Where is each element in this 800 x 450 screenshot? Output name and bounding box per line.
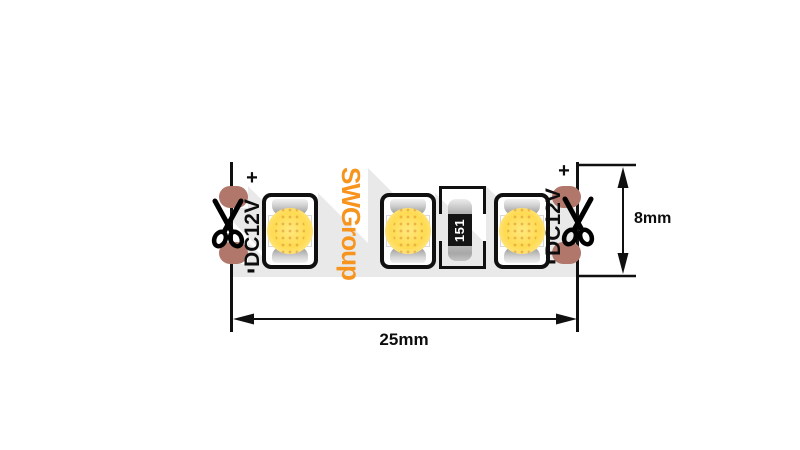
led-phosphor-dots — [275, 206, 305, 256]
led-chip-1 — [262, 193, 318, 269]
led-phosphor-dots — [393, 206, 423, 256]
resistor: 151 — [448, 199, 472, 261]
resistor-band: 151 — [448, 214, 472, 246]
dim-line-8mm — [618, 167, 629, 274]
polarity-minus-right: - — [542, 250, 562, 274]
dim-line-25mm — [233, 314, 577, 325]
resistor-value: 151 — [452, 218, 467, 241]
diagram-canvas: SWGroup 151 + DC12V - + DC12V - — [0, 0, 800, 450]
scissors-icon — [556, 196, 600, 248]
brand-logo: SWGroup — [336, 167, 366, 267]
dim-label-height: 8mm — [634, 210, 671, 228]
polarity-minus-left: - — [241, 259, 261, 283]
led-chip-2 — [380, 193, 436, 269]
led-phosphor-dots — [507, 206, 537, 256]
polarity-plus-left: + — [243, 166, 261, 190]
dim-label-width: 25mm — [368, 330, 440, 350]
scissors-icon — [206, 198, 250, 250]
